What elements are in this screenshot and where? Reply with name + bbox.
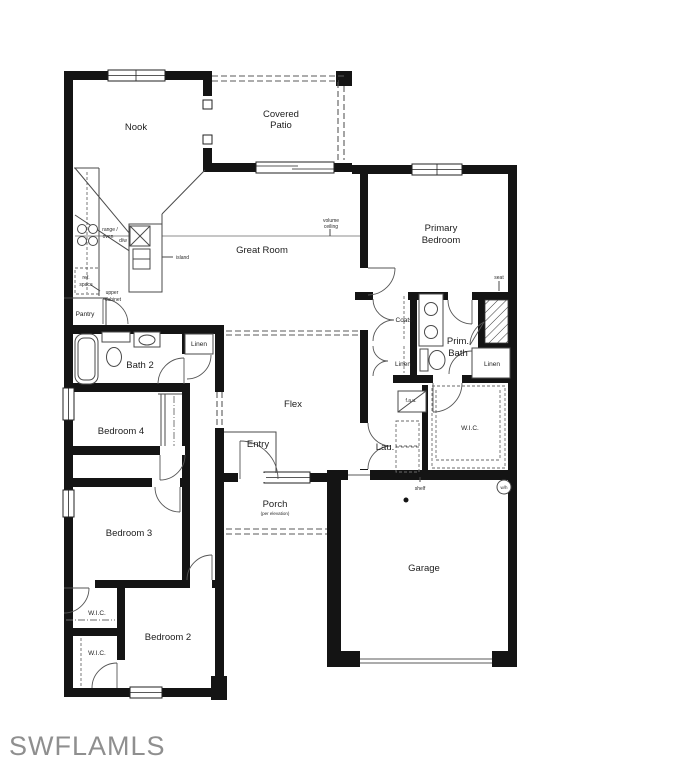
shelf-label: shelf [415, 486, 426, 492]
wic-bedroom3-label: W.I.C. [88, 610, 106, 617]
coats-label: Coats [396, 317, 414, 324]
range-oven-fixture [78, 225, 98, 246]
wic-primary-label: W.I.C. [461, 425, 479, 432]
seat-label: seat [494, 275, 504, 281]
floor-drain-dot [404, 498, 409, 503]
bath2-label: Bath 2 [126, 360, 153, 371]
covered-patio-label-line1: Covered [263, 109, 299, 120]
primary-bedroom-label-line2: Bedroom [422, 235, 461, 246]
dishwasher-label: d/w [119, 238, 127, 244]
ref-space-label-line1: ref. [82, 275, 89, 281]
prim-bath-label-line2: Bath [448, 348, 468, 359]
bedroom3-label: Bedroom 3 [106, 528, 152, 539]
fau-label: f.a.u. [405, 398, 416, 404]
upper-cabinet-label-line2: cabinet [105, 297, 122, 303]
shower-fixture [485, 300, 508, 343]
kitchen-island-fixture [129, 224, 162, 292]
linen-primary-hall-label: Linen [395, 361, 411, 368]
bedroom4-label: Bedroom 4 [98, 426, 144, 437]
floor-plan-page: Nook Covered Patio Great Room Primary Be… [0, 0, 676, 768]
washer-dryer-fixture [396, 421, 419, 472]
flex-label: Flex [284, 399, 302, 410]
bedroom2-label: Bedroom 2 [145, 632, 191, 643]
porch-label: Porch [263, 499, 288, 510]
entry-label: Entry [247, 439, 269, 450]
floor-plan-drawing: Nook Covered Patio Great Room Primary Be… [0, 0, 676, 768]
nook-label: Nook [125, 122, 147, 133]
linen-prim-bath-label: Linen [484, 361, 500, 368]
great-room-label: Great Room [236, 245, 288, 256]
covered-patio-label-line2: Patio [270, 120, 292, 131]
ref-space-label-line2: space [79, 282, 93, 288]
bath2-fixtures [75, 332, 160, 384]
watermark: SWFLAMLS [9, 731, 166, 762]
primary-bedroom-label-line1: Primary [425, 223, 458, 234]
volume-ceiling-label-line2: ceiling [324, 224, 338, 230]
garage-label: Garage [408, 563, 440, 574]
range-oven-label-line1: range / [102, 227, 118, 233]
water-heater-label: w/h [500, 485, 508, 490]
upper-cabinet-label-line1: upper [106, 290, 119, 296]
wic-bedroom2-label: W.I.C. [88, 650, 106, 657]
linen-hall-label: Linen [191, 341, 207, 348]
laundry-label: Lau. [376, 442, 395, 453]
range-oven-label-line2: oven [103, 234, 114, 240]
island-label: island [176, 255, 189, 261]
prim-bath-label-line1: Prim. [447, 336, 469, 347]
porch-note-label: (per elevation) [261, 511, 290, 516]
pantry-label: Pantry [76, 311, 96, 318]
